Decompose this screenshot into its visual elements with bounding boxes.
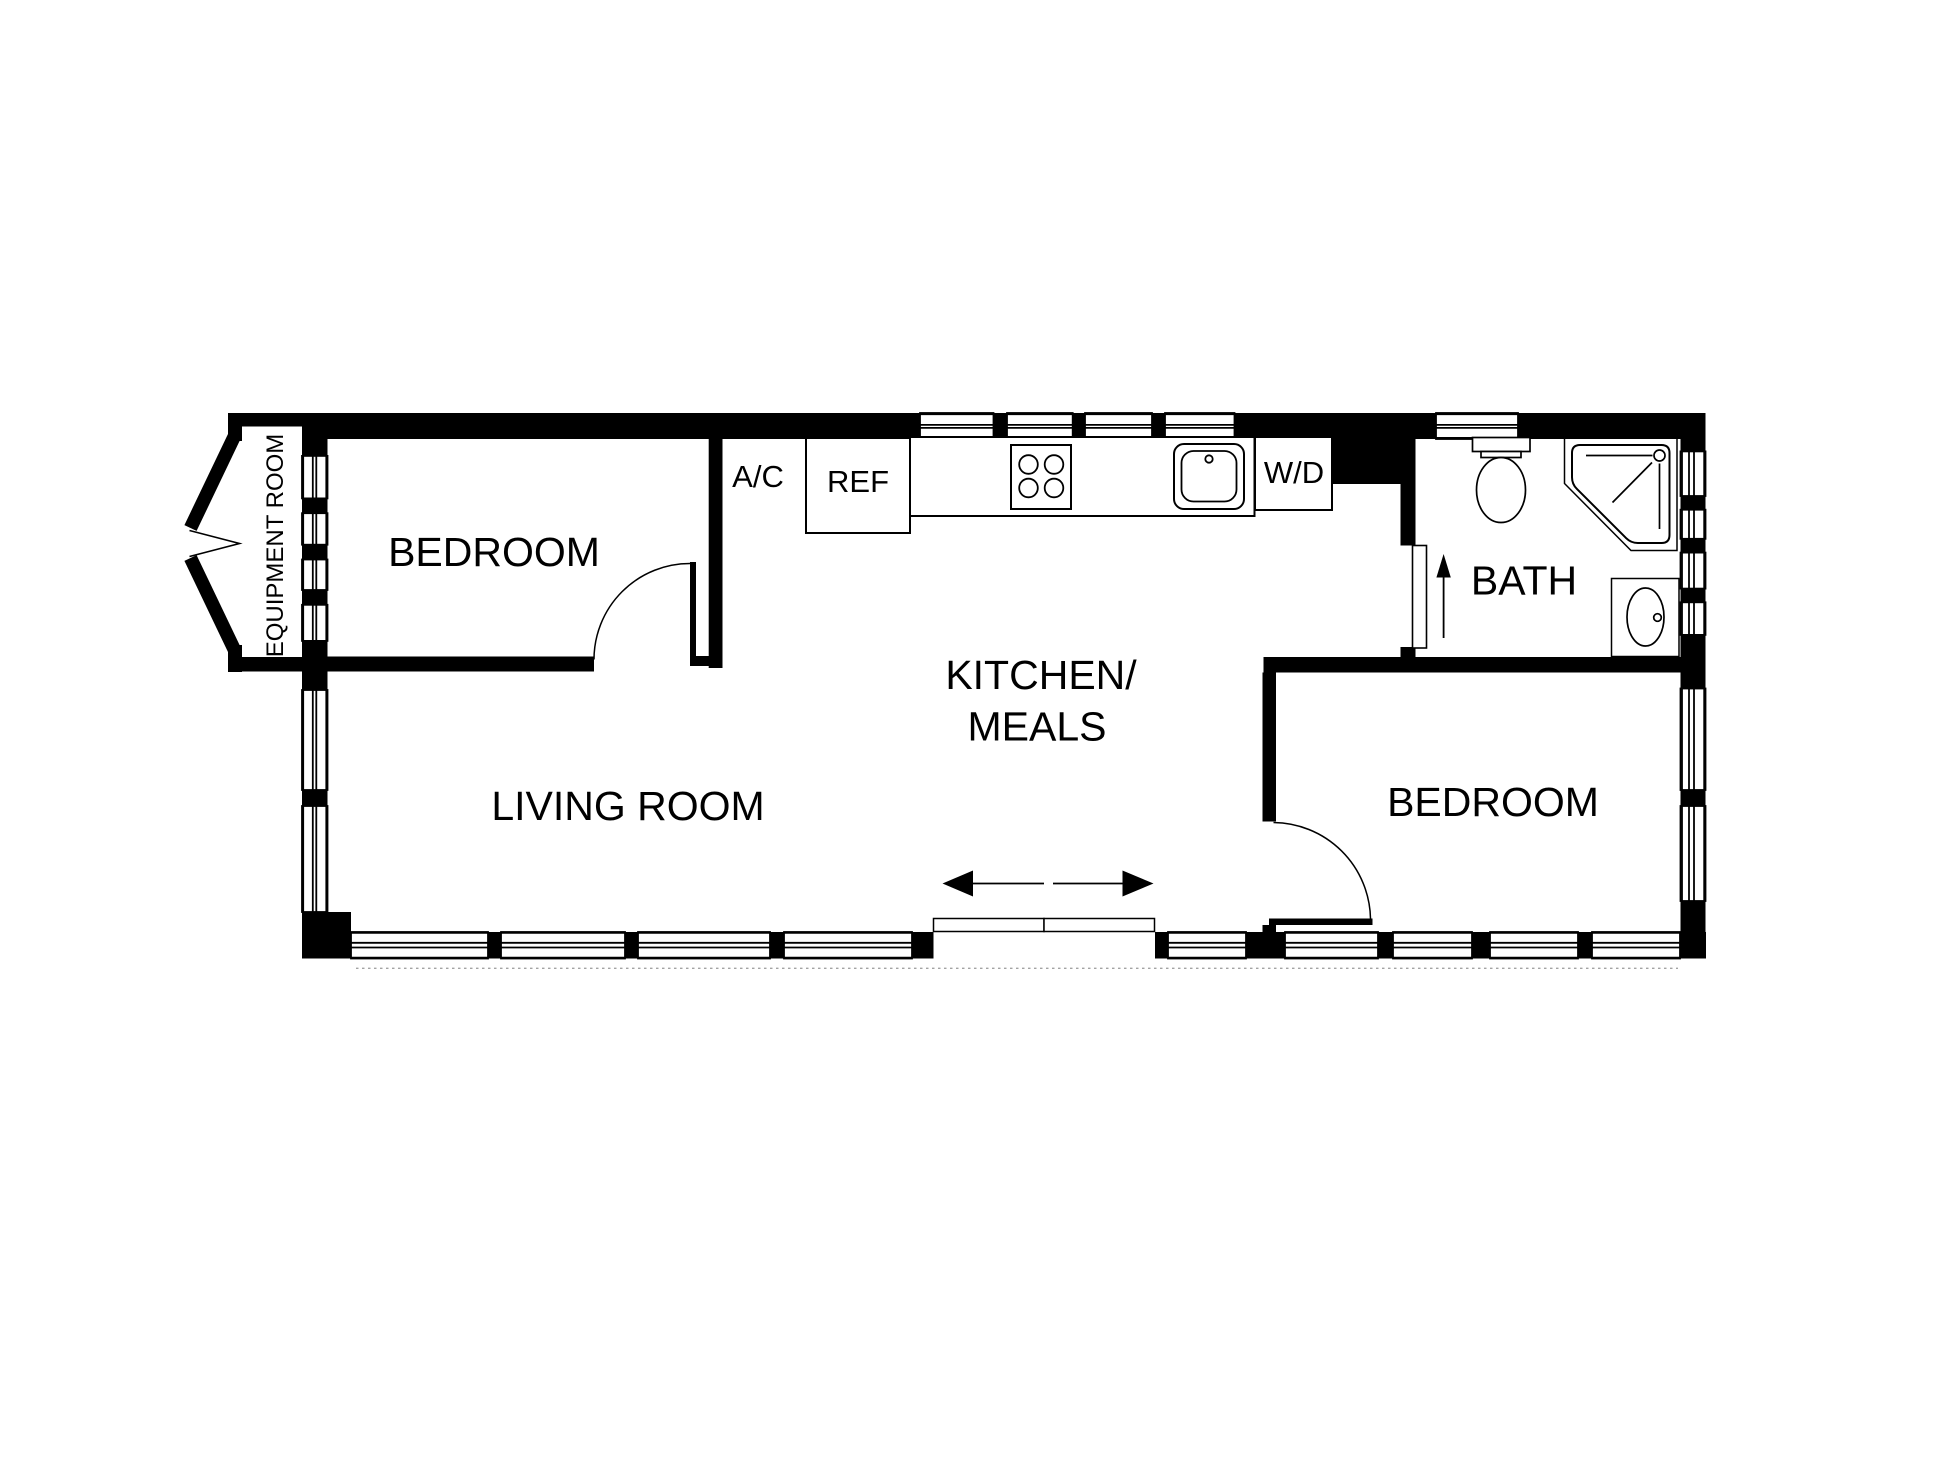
svg-text:BATH: BATH [1471,558,1577,604]
svg-text:A/C: A/C [732,459,784,494]
svg-text:KITCHEN/: KITCHEN/ [945,652,1137,698]
svg-text:BEDROOM: BEDROOM [1387,779,1599,825]
svg-text:REF: REF [827,464,889,499]
svg-text:MEALS: MEALS [968,704,1107,750]
svg-text:LIVING ROOM: LIVING ROOM [491,783,764,829]
svg-text:W/D: W/D [1264,455,1324,490]
svg-text:EQUIPMENT ROOM: EQUIPMENT ROOM [262,434,289,658]
svg-text:BEDROOM: BEDROOM [388,529,600,575]
